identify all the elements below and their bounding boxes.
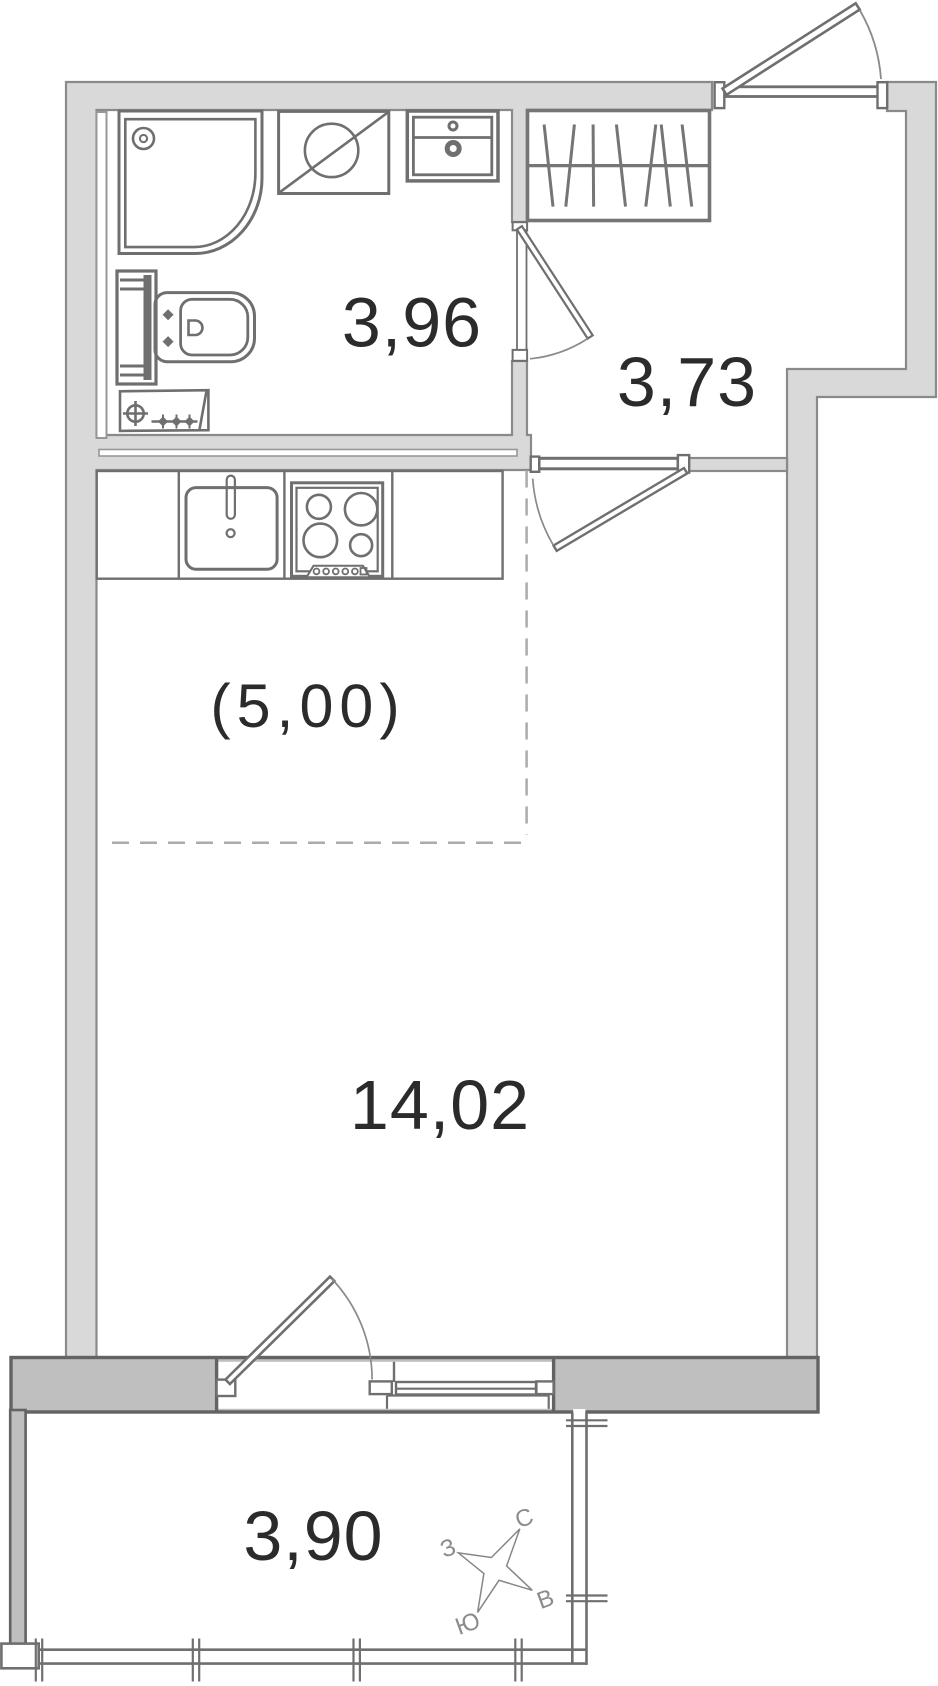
svg-text:3,90: 3,90 <box>243 1497 383 1575</box>
svg-text:14,02: 14,02 <box>350 1066 530 1144</box>
svg-text:В: В <box>533 1584 557 1615</box>
svg-text:С: С <box>512 1503 538 1534</box>
svg-text:Ю: Ю <box>452 1607 484 1641</box>
svg-text:З: З <box>437 1533 460 1563</box>
svg-text:3,73: 3,73 <box>617 343 757 421</box>
svg-text:(5,00): (5,00) <box>210 672 405 740</box>
svg-text:3,96: 3,96 <box>342 284 482 362</box>
